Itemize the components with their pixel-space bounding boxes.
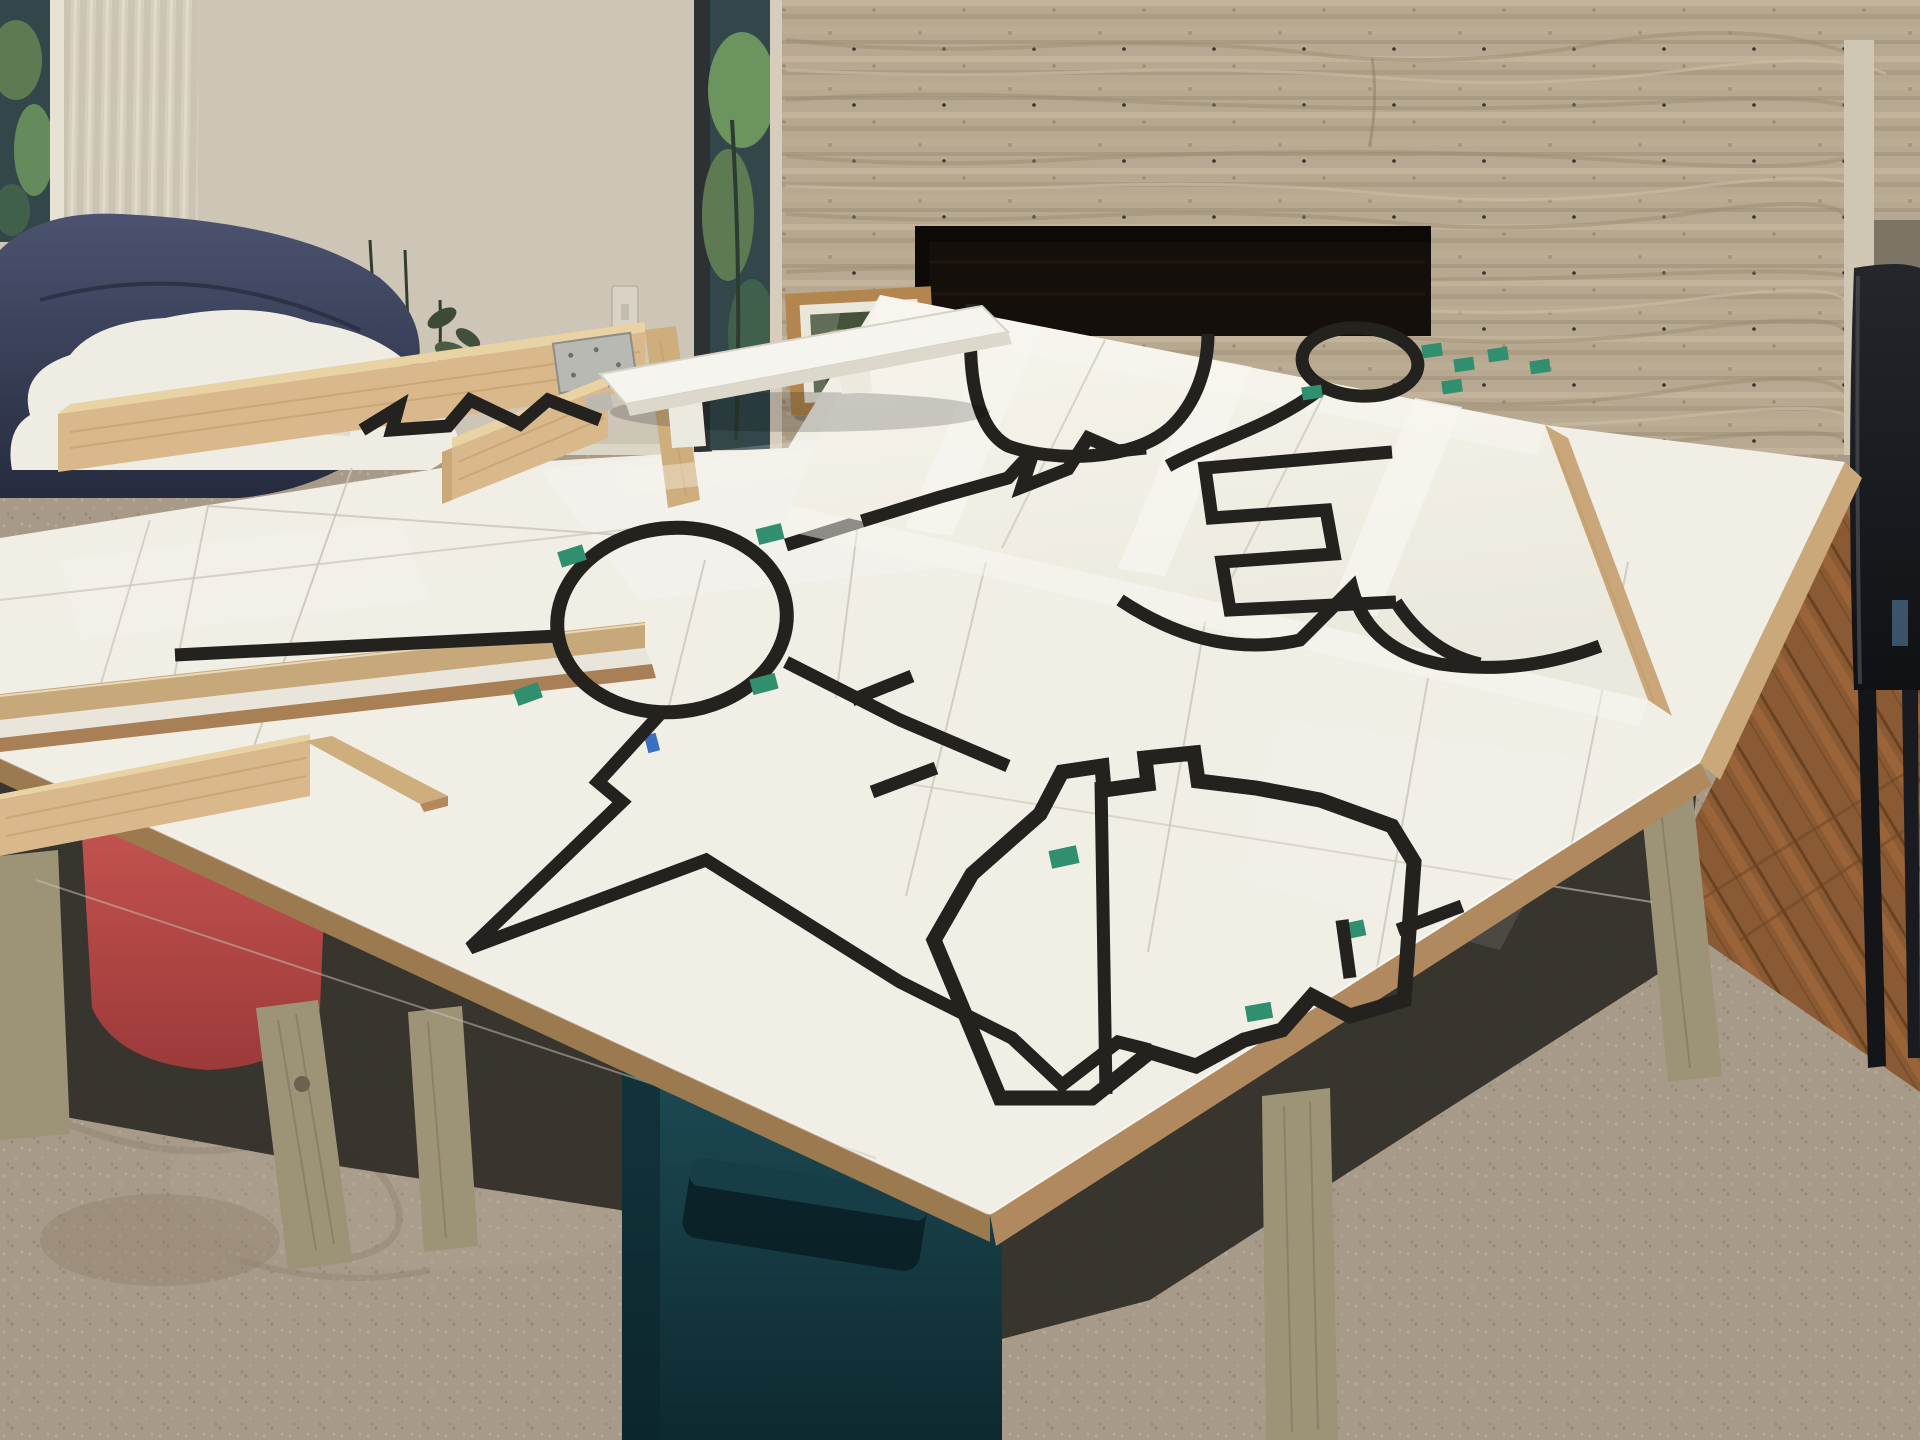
- photo-living-room-course-table: [0, 0, 1920, 1440]
- loop-inner-line: [1101, 782, 1106, 1094]
- chair-blue-glint: [1892, 600, 1908, 646]
- window-frame: [50, 0, 66, 242]
- t-stem: [1342, 920, 1350, 978]
- scene-canvas: [0, 0, 1920, 1440]
- switch-toggle[interactable]: [621, 304, 629, 320]
- bin-side-shade: [622, 1066, 660, 1440]
